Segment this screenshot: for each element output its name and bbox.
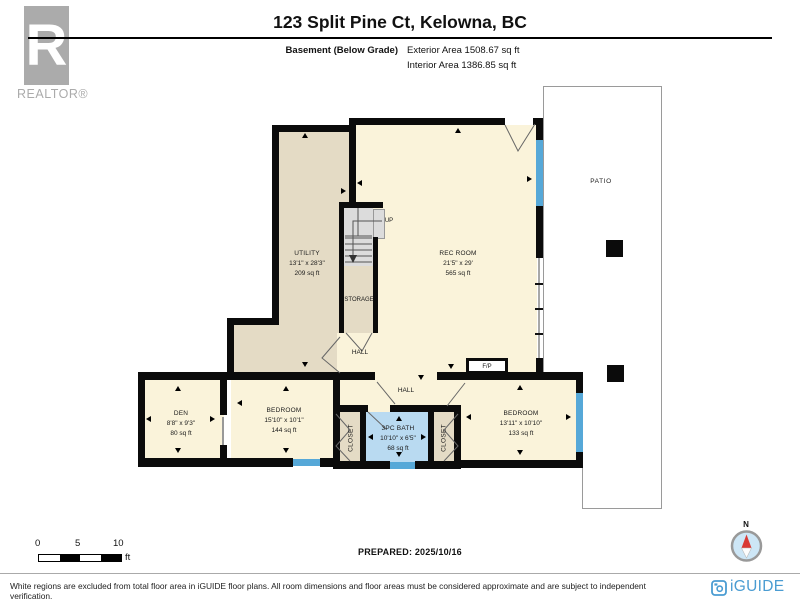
- dimension-arrow: [237, 400, 242, 406]
- dimension-arrow: [302, 133, 308, 138]
- compass-icon: [730, 529, 763, 563]
- utility-label: UTILITY 13'1" x 28'3" 209 sq ft: [289, 249, 325, 278]
- dimension-arrow: [466, 414, 471, 420]
- bedroom-right-label: BEDROOM 13'11" x 10'10" 133 sq ft: [500, 409, 542, 438]
- dimension-arrow: [517, 385, 523, 390]
- dimension-arrow: [527, 176, 532, 182]
- patio-label: PATIO: [590, 177, 612, 187]
- iguide-logo-icon: [711, 580, 727, 596]
- dimension-arrow: [396, 416, 402, 421]
- dimension-arrow: [283, 448, 289, 453]
- dimension-arrow: [566, 414, 571, 420]
- dimension-arrow: [302, 362, 308, 367]
- dimension-arrow: [175, 386, 181, 391]
- dimension-arrow: [146, 416, 151, 422]
- storage-label: STORAGE: [344, 296, 373, 305]
- dimension-arrow: [421, 434, 426, 440]
- closet-right-label: CLOSET: [441, 424, 448, 452]
- dimension-arrow: [517, 450, 523, 455]
- hall-lower-label: HALL: [398, 386, 414, 396]
- den-label: DEN 8'8" x 9'3" 80 sq ft: [167, 409, 195, 438]
- bath-label: 3PC BATH 10'10" x 6'5" 68 sq ft: [380, 424, 416, 453]
- hall-upper-label: HALL: [352, 348, 368, 358]
- dimension-arrow: [341, 188, 346, 194]
- dimension-arrow: [448, 364, 454, 369]
- bedroom-left-label: BEDROOM 15'10" x 10'1" 144 sq ft: [264, 406, 303, 435]
- dimension-arrow: [368, 434, 373, 440]
- stairs-up-label: UP: [385, 217, 393, 226]
- fireplace-label: F/P: [482, 363, 491, 372]
- rec-room-label: REC ROOM 21'5" x 29' 565 sq ft: [439, 249, 476, 278]
- dimension-arrow: [455, 128, 461, 133]
- dimension-arrow: [210, 416, 215, 422]
- dimension-arrow: [357, 180, 362, 186]
- dimension-arrow: [283, 386, 289, 391]
- closet-left-label: CLOSET: [348, 424, 355, 452]
- door-swing-and-stair-lines: [0, 0, 800, 600]
- dimension-arrow: [175, 448, 181, 453]
- dimension-arrow: [396, 452, 402, 457]
- dimension-arrow: [418, 375, 424, 380]
- floorplan-page: R REALTOR® 123 Split Pine Ct, Kelowna, B…: [0, 0, 800, 600]
